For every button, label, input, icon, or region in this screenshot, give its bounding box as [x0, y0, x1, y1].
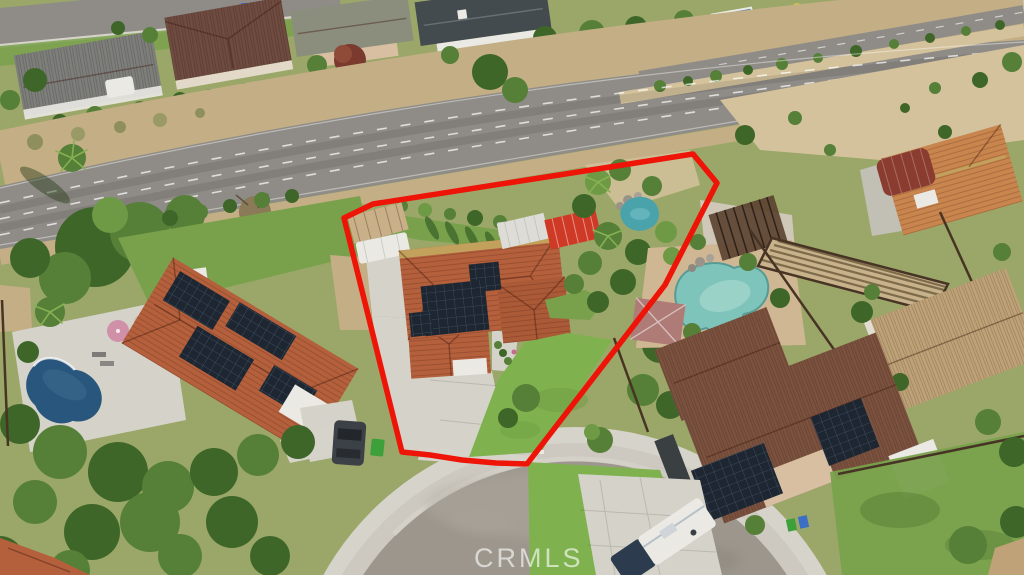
aerial-photo-canvas [0, 0, 1024, 575]
trash-bin-green [370, 438, 385, 456]
aerial-listing-photo: CRMLS [0, 0, 1024, 575]
parked-car-dark [332, 420, 367, 466]
crmls-watermark: CRMLS [474, 543, 584, 574]
garage-door [452, 358, 487, 376]
